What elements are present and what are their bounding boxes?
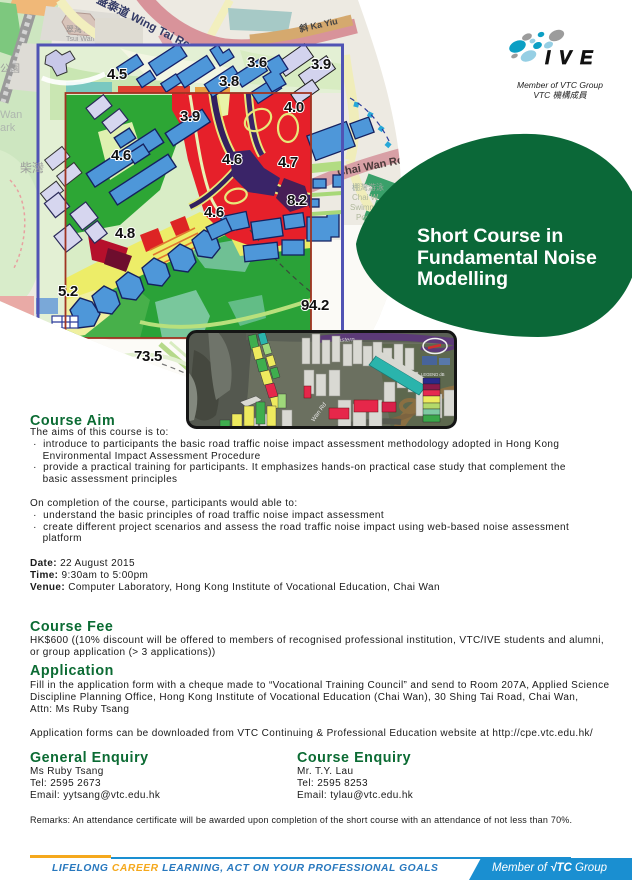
svg-text:Wan: Wan (0, 109, 22, 121)
svg-text:4.5: 4.5 (107, 66, 127, 83)
svg-text:Tsui Wan: Tsui Wan (66, 36, 95, 43)
svg-text:公園: 公園 (0, 63, 20, 75)
svg-text:3.9: 3.9 (180, 108, 200, 125)
svg-text:3.6: 3.6 (247, 54, 267, 71)
svg-text:3.9: 3.9 (311, 56, 331, 73)
svg-text:IVE: IVE (545, 48, 601, 69)
svg-text:4.6: 4.6 (111, 147, 131, 164)
svg-text:8.2: 8.2 (287, 192, 307, 209)
svg-text:4.0: 4.0 (284, 99, 304, 116)
svg-text:4.6: 4.6 (204, 204, 224, 221)
svg-text:4.6: 4.6 (222, 151, 242, 168)
svg-text:4.8: 4.8 (115, 225, 135, 242)
svg-text:73.5: 73.5 (134, 348, 162, 365)
svg-text:94.2: 94.2 (301, 297, 329, 314)
svg-text:柴灣: 柴灣 (20, 161, 44, 175)
svg-text:5.2: 5.2 (58, 283, 78, 300)
svg-text:ark: ark (0, 122, 16, 134)
svg-text:LEGEND dB: LEGEND dB (421, 372, 445, 377)
svg-text:4.7: 4.7 (278, 154, 298, 171)
svg-text:3.8: 3.8 (219, 73, 239, 90)
